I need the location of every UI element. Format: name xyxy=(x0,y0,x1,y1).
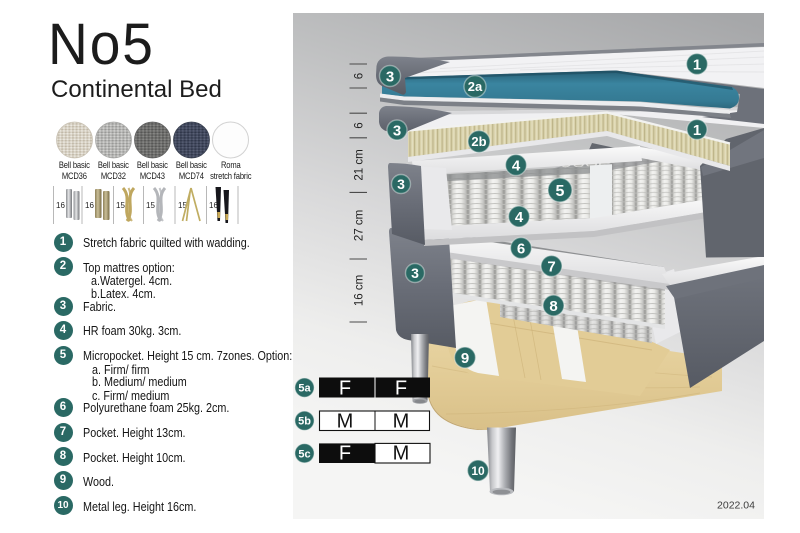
svg-text:16: 16 xyxy=(56,201,65,210)
svg-text:2a: 2a xyxy=(468,79,483,94)
svg-text:F: F xyxy=(395,377,407,399)
svg-text:15: 15 xyxy=(116,201,125,210)
svg-text:15: 15 xyxy=(146,201,155,210)
svg-text:21 cm: 21 cm xyxy=(354,149,366,180)
svg-text:3: 3 xyxy=(386,68,394,85)
svg-text:3: 3 xyxy=(397,176,405,192)
svg-text:M: M xyxy=(393,443,410,465)
svg-text:9: 9 xyxy=(461,350,469,367)
svg-text:F: F xyxy=(339,377,351,399)
svg-text:16 cm: 16 cm xyxy=(354,275,366,306)
svg-text:2b: 2b xyxy=(471,134,486,149)
svg-text:M: M xyxy=(337,410,354,432)
svg-text:8: 8 xyxy=(549,298,557,315)
svg-text:6: 6 xyxy=(354,73,366,79)
svg-text:1: 1 xyxy=(693,122,701,139)
svg-text:16: 16 xyxy=(85,201,94,210)
svg-text:1: 1 xyxy=(693,56,701,73)
svg-text:7: 7 xyxy=(547,258,555,275)
svg-text:6: 6 xyxy=(517,240,525,257)
svg-text:5b: 5b xyxy=(298,416,311,428)
svg-text:3: 3 xyxy=(393,122,401,139)
svg-text:5: 5 xyxy=(556,183,565,200)
svg-text:6: 6 xyxy=(354,122,366,128)
svg-text:27 cm: 27 cm xyxy=(354,210,366,241)
svg-text:M: M xyxy=(393,410,410,432)
svg-text:4: 4 xyxy=(512,157,521,174)
svg-text:4: 4 xyxy=(515,209,524,226)
svg-text:3: 3 xyxy=(411,265,419,281)
svg-text:5a: 5a xyxy=(298,383,311,395)
svg-text:2022.04: 2022.04 xyxy=(717,500,755,512)
svg-text:5c: 5c xyxy=(298,448,310,460)
svg-text:F: F xyxy=(339,443,351,465)
svg-text:10: 10 xyxy=(471,464,485,478)
